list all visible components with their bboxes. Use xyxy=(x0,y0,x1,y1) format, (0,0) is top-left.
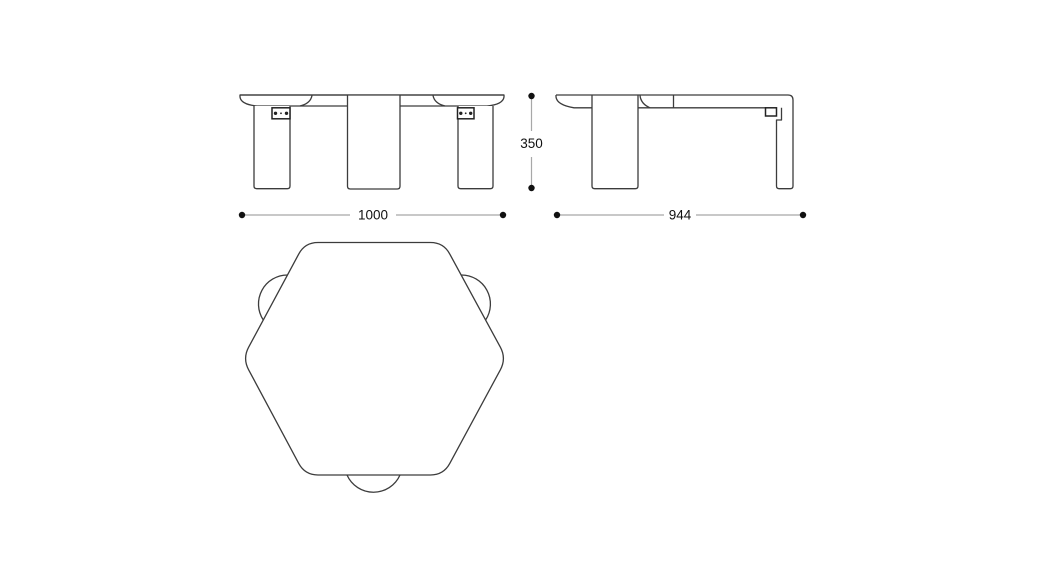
leg-arc-bottom xyxy=(347,475,400,492)
screw-icon xyxy=(459,112,462,115)
dimension-endpoint-dot xyxy=(528,185,534,191)
dimension-side-depth: 944 xyxy=(554,208,806,223)
screw-icon xyxy=(469,112,472,115)
mounting-bracket-front-left xyxy=(272,108,290,119)
dimension-front-width: 1000 xyxy=(239,208,506,223)
leg-side-back-and-edge xyxy=(777,95,794,189)
dimension-endpoint-dot xyxy=(239,212,245,218)
dimension-endpoint-dot xyxy=(554,212,560,218)
side-elevation-view xyxy=(556,95,793,189)
technical-drawing-canvas: 1000 944 350 xyxy=(0,0,1038,584)
dimension-endpoint-dot xyxy=(800,212,806,218)
dimension-endpoint-dot xyxy=(500,212,506,218)
dimension-height: 350 xyxy=(520,93,543,191)
tabletop-side-left-cap xyxy=(556,95,766,108)
dimension-endpoint-dot xyxy=(528,93,534,99)
hexagonal-tabletop-outline xyxy=(246,243,504,476)
screw-icon xyxy=(280,112,282,114)
tabletop-corner-seam-side xyxy=(640,96,650,108)
dimension-label: 1000 xyxy=(358,208,388,223)
tabletop-corner-seam-right xyxy=(433,96,445,107)
leg-front-center xyxy=(348,95,401,189)
screw-icon xyxy=(285,112,288,115)
dimension-label: 944 xyxy=(669,208,692,223)
screw-icon xyxy=(274,112,277,115)
screw-icon xyxy=(465,112,467,114)
technical-drawing-page: 1000 944 350 xyxy=(0,0,1038,584)
plan-view xyxy=(246,243,504,493)
tabletop-corner-seam-left xyxy=(300,96,312,107)
mounting-bracket-side xyxy=(766,108,777,116)
dimension-label: 350 xyxy=(520,136,543,151)
front-elevation-view xyxy=(240,95,504,189)
leg-side-front xyxy=(592,95,638,189)
mounting-bracket-front-right xyxy=(458,108,475,119)
